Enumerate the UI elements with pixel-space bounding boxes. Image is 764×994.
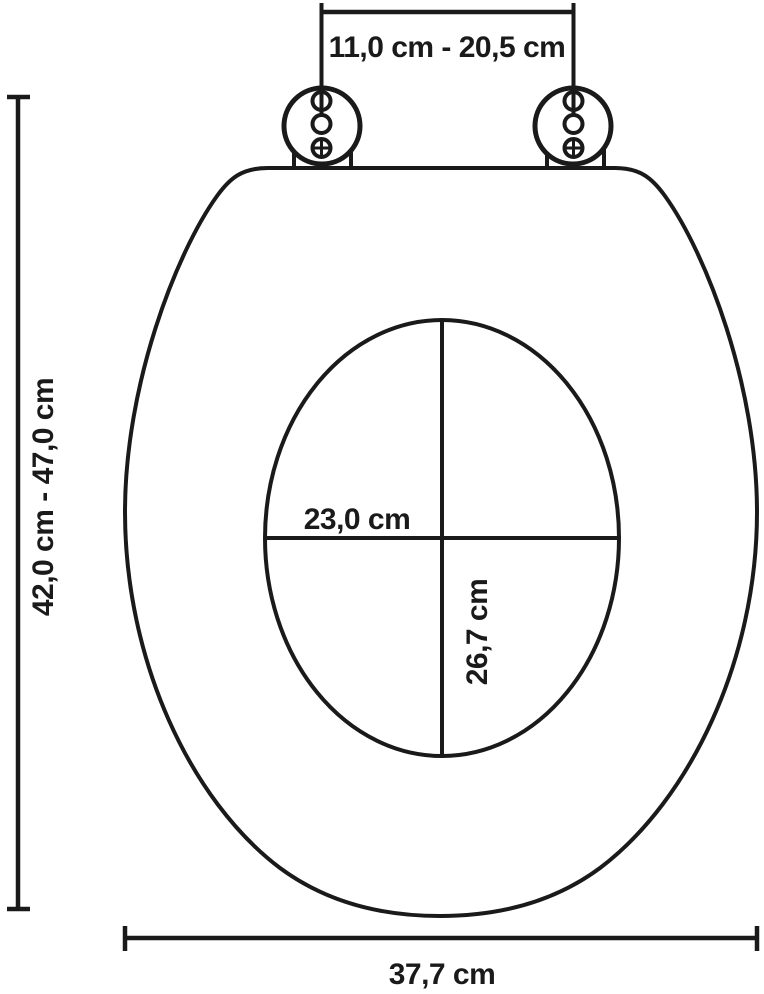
total-length-label: 42,0 cm - 47,0 cm [29, 378, 59, 616]
left-hinge-pin-middle [313, 115, 331, 133]
total-width-label: 37,7 cm [389, 960, 496, 990]
right-hinge-pin-middle [565, 115, 583, 133]
inner-depth-label: 26,7 cm [463, 579, 493, 686]
toilet-seat-dimension-diagram: 11,0 cm - 20,5 cm 42,0 cm - 47,0 cm 23,0… [0, 0, 764, 994]
inner-width-label: 23,0 cm [304, 505, 411, 535]
hinge-distance-label: 11,0 cm - 20,5 cm [329, 33, 566, 63]
diagram-line-art [0, 0, 764, 994]
